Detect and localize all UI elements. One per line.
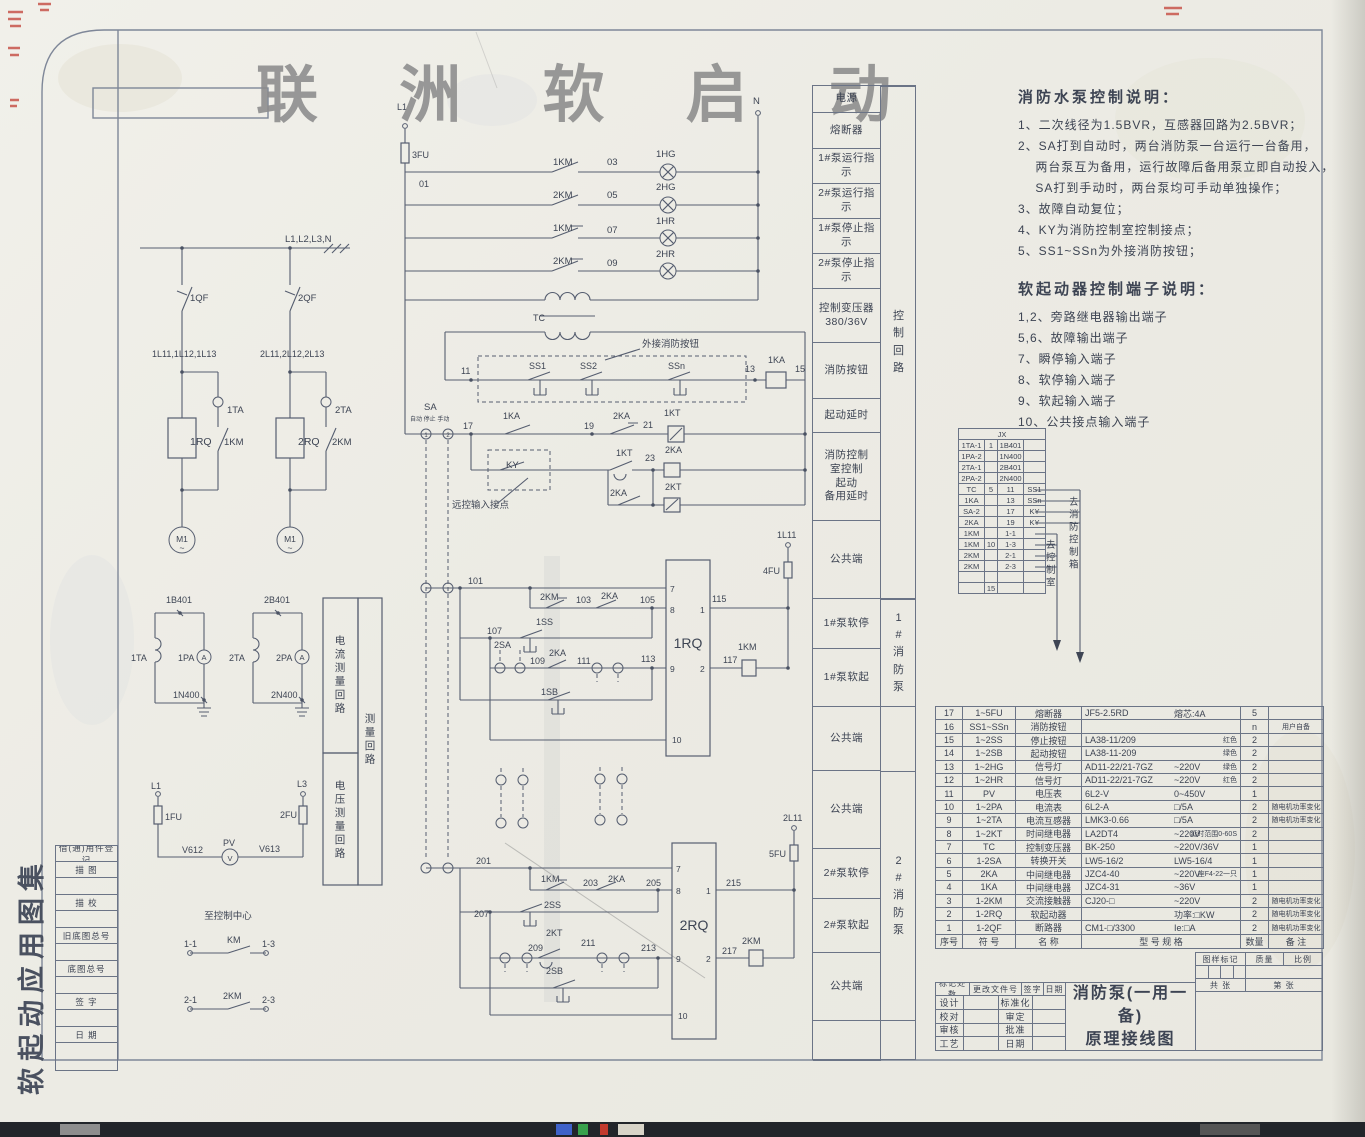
current-transformer-icon — [321, 397, 331, 407]
approval-value-cell — [963, 1023, 999, 1038]
approval-value-cell — [1032, 1036, 1066, 1051]
parts-model: BK-250 — [1085, 842, 1115, 852]
schematic-label: 1KM — [553, 157, 573, 168]
schematic-label: 2-1 — [184, 995, 197, 1005]
parts-cell: LA38-11/209红色 — [1081, 733, 1241, 747]
row-label-cell: 1#泵停止指示 — [813, 219, 881, 254]
schematic-label: 3FU — [412, 150, 429, 160]
approval-label-cell: 工艺 — [935, 1036, 964, 1051]
schematic-label: 107 — [487, 626, 502, 636]
approval-label-cell: 审核 — [935, 1023, 964, 1038]
parts-cell: 消防按钮 — [1015, 719, 1082, 733]
schematic-label: 1KT — [664, 408, 681, 418]
contact-number-circle — [595, 815, 605, 825]
notes-heading-1: 消防水泵控制说明： — [1018, 86, 1362, 107]
junction-dot — [458, 586, 462, 590]
parts-cell: 时间继电器 — [1015, 827, 1082, 841]
parts-cell: 2KA — [962, 867, 1016, 881]
parts-cell — [1268, 880, 1324, 894]
parts-extra: 红色 — [1223, 735, 1237, 745]
schematic-label: 109 — [530, 656, 545, 666]
notes-list-1: 1、二次线径为1.5BVR，互感器回路为2.5BVR；2、SA打到自动时，两台消… — [1018, 115, 1362, 262]
parts-cell: 2 — [1240, 773, 1269, 787]
schematic-label: SA — [424, 402, 437, 413]
scan-edge-shadow — [1331, 0, 1365, 1122]
parts-spec: Ie:□A — [1174, 923, 1195, 933]
note-item: 7、瞬停输入端子 — [1018, 349, 1362, 370]
approval-value-cell — [963, 995, 999, 1010]
parts-cell: 1-2QF — [962, 920, 1016, 934]
schematic-label: V612 — [182, 845, 203, 855]
schematic-label: 2TA — [335, 405, 352, 416]
schematic-label: 1FU — [165, 812, 182, 822]
junction-dot — [756, 203, 760, 207]
schematic-label: 15 — [795, 364, 805, 374]
row-label-cell: 1#泵软停 — [813, 599, 881, 649]
schematic-label: 1HG — [656, 149, 676, 160]
parts-extra: 绿色 — [1223, 762, 1237, 772]
note-item: 两台泵互为备用，运行故障后备用泵立即自动投入， — [1018, 157, 1362, 178]
stamp-mark-cell — [1195, 965, 1209, 979]
stamp-header-cell: 质量 — [1245, 952, 1284, 966]
parts-model: LW5-16/2 — [1085, 856, 1123, 866]
parts-cell: 6L2-A□/5A — [1081, 800, 1241, 814]
parts-cell: 用户自备 — [1268, 719, 1324, 733]
schematic-label: 19 — [584, 421, 594, 431]
notes-list-2: 1,2、旁路继电器输出端子5,6、故障输出端子7、瞬停输入端子8、软停输入端子9… — [1018, 307, 1362, 433]
parts-spec: 0~450V — [1174, 789, 1205, 799]
approval-value-cell — [1032, 1009, 1066, 1024]
schematic-label: 2KA — [549, 648, 566, 658]
parts-cell: 随电机功率变化 — [1268, 894, 1324, 908]
parts-cell: 交流接触器 — [1015, 894, 1082, 908]
parts-cell — [1268, 760, 1324, 774]
junction-dot — [803, 468, 807, 472]
current-transformer-icon — [213, 397, 223, 407]
register-cell — [55, 976, 118, 994]
schematic-label: 2KA — [665, 445, 682, 455]
note-item: 4、KY为消防控制室控制接点； — [1018, 220, 1362, 241]
scan-edge-artifact — [600, 1124, 608, 1135]
schematic-label: 2KT — [665, 482, 682, 492]
parts-cell — [1268, 853, 1324, 867]
parts-cell: JF5-2.5RD熔芯:4A — [1081, 706, 1241, 720]
parts-cell: JZC4-31~36V — [1081, 880, 1241, 894]
parts-cell: 2 — [1240, 760, 1269, 774]
schematic-label: 2KM — [540, 592, 559, 602]
junction-dot — [180, 488, 184, 492]
schematic-label: 远控输入接点 — [452, 499, 510, 511]
parts-cell — [1268, 867, 1324, 881]
parts-model: 6L2-A — [1085, 802, 1109, 812]
row-label-cell: 公共端 — [813, 521, 881, 599]
parts-cell: 1~2KT — [962, 827, 1016, 841]
parts-cell: PV — [962, 786, 1016, 800]
junction-dot — [756, 269, 760, 273]
schematic-label: 117 — [723, 655, 737, 665]
parts-cell: 功率:□KW — [1081, 907, 1241, 921]
parts-cell: TC — [962, 840, 1016, 854]
schematic-label: 1KT — [616, 448, 633, 458]
parts-cell: 12 — [935, 773, 963, 787]
parts-spec: ~220V/36V — [1174, 842, 1219, 852]
schematic-label: L1,L2,L3,N — [285, 234, 332, 245]
row-labels-column: 电源熔断器1#泵运行指示2#泵运行指示1#泵停止指示2#泵停止指示控制变压器 3… — [812, 85, 916, 1060]
parts-cell: LW5-16/2LW5-16/4 — [1081, 853, 1241, 867]
schematic-label: 1TA — [131, 653, 147, 663]
parts-header-cell: 符 号 — [962, 934, 1016, 949]
group-label-cell: 1 # 消 防 泵 — [881, 599, 916, 707]
register-cell: 描 校 — [55, 894, 118, 911]
register-cell: 旧底图总号 — [55, 927, 118, 944]
parts-model: AD11-22/21-7GZ — [1085, 762, 1153, 772]
schematic-label: 2-3 — [262, 995, 275, 1005]
contact-number-circle — [617, 815, 627, 825]
parts-cell: 1 — [935, 920, 963, 934]
parts-cell: BK-250~220V/36V — [1081, 840, 1241, 854]
register-cell: 底图总号 — [55, 960, 118, 977]
schematic-label: 1KM — [738, 642, 757, 652]
parts-cell: 2 — [1240, 907, 1269, 921]
register-cell: 描 图 — [55, 861, 118, 878]
schematic-label: 2KM — [553, 256, 573, 267]
terminal-icon — [301, 792, 306, 797]
scan-edge-artifact — [556, 1124, 572, 1135]
schematic-label: 2 — [700, 664, 705, 674]
schematic-label: 207 — [474, 909, 489, 919]
schematic-label: 1KM — [541, 874, 560, 884]
parts-cell: 15 — [935, 733, 963, 747]
row-label-cell: 公共端 — [813, 771, 881, 849]
parts-cell: 电压表 — [1015, 786, 1082, 800]
parts-cell: 1 — [1240, 853, 1269, 867]
parts-cell: 3 — [935, 894, 963, 908]
junction-dot — [528, 586, 532, 590]
schematic-label: 21 — [643, 420, 653, 430]
schematic-label: SS1 — [529, 361, 546, 371]
schematic-label: 1KM — [224, 437, 244, 448]
parts-cell: 停止按钮 — [1015, 733, 1082, 747]
schematic-label: 电压测量回路 — [335, 779, 346, 860]
junction-dot — [786, 666, 790, 670]
group-label-cell: 2 # 消 防 泵 — [881, 771, 916, 1021]
schematic-label: 07 — [607, 225, 618, 236]
schematic-symbols — [156, 111, 807, 1012]
parts-cell: 中间继电器 — [1015, 867, 1082, 881]
schematic-label: KY — [506, 460, 519, 471]
parts-cell: 14 — [935, 746, 963, 760]
stamp-mark-cell — [1208, 965, 1222, 979]
schematic-label: 1HR — [656, 216, 675, 227]
schematic-label: A — [299, 653, 304, 662]
parts-model: LA38-11/209 — [1085, 735, 1136, 745]
schematic-label: V — [227, 854, 232, 863]
register-cell — [55, 877, 118, 895]
notes-block: 消防水泵控制说明： 1、二次线径为1.5BVR，互感器回路为2.5BVR；2、S… — [1018, 86, 1362, 433]
note-item: 5,6、故障输出端子 — [1018, 328, 1362, 349]
approval-label-cell: 日期 — [998, 1036, 1033, 1051]
schematic-label: 2KA — [608, 874, 625, 884]
approval-value-cell — [963, 1009, 999, 1024]
terminal-icon — [156, 792, 161, 797]
row-label-cell: 控制变压器 380/36V — [813, 289, 881, 343]
parts-model: LA2DT4 — [1085, 829, 1118, 839]
schematic-label: 10 — [678, 1011, 688, 1021]
parts-cell: 5 — [1240, 706, 1269, 720]
parts-cell: 熔断器 — [1015, 706, 1082, 720]
revision-header-cell: 签字 — [1021, 982, 1044, 996]
parts-cell: 软起动器 — [1015, 907, 1082, 921]
schematic-label: 2PA — [276, 653, 292, 663]
parts-cell: 13 — [935, 760, 963, 774]
scan-bottom-strip — [0, 1122, 1365, 1137]
schematic-label: 1KA — [503, 411, 520, 421]
approval-label-cell: 批准 — [998, 1023, 1033, 1038]
parts-model: LMK3-0.66 — [1085, 815, 1129, 825]
schematic-label: 2QF — [298, 293, 317, 304]
junction-dot — [590, 432, 594, 436]
parts-cell: 17 — [935, 706, 963, 720]
junction-dot — [650, 606, 654, 610]
approval-label-cell: 标准化 — [998, 995, 1033, 1010]
parts-extra: 绿色 — [1223, 748, 1237, 758]
row-label-cell: 2#泵软停 — [813, 849, 881, 899]
side-vertical-title: 软起动应用图集 — [10, 845, 48, 1107]
parts-cell: 1~2HG — [962, 760, 1016, 774]
schematic-label: 1 — [706, 886, 711, 896]
parts-cell: 电流互感器 — [1015, 813, 1082, 827]
drawing-title-line1: 消防泵(一用一备) — [1066, 982, 1195, 1028]
parts-cell: SS1~SSn — [962, 719, 1016, 733]
junction-dot — [792, 888, 796, 892]
schematic-label: ~ — [288, 543, 293, 553]
schematic-label: 2RQ — [298, 436, 320, 448]
parts-spec: 熔芯:4A — [1174, 707, 1206, 720]
parts-cell: 2 — [1240, 733, 1269, 747]
parts-model: AD11-22/21-7GZ — [1085, 775, 1153, 785]
parts-extra: 延时范围0-60S — [1190, 829, 1237, 839]
parts-model: CM1-□/3300 — [1085, 923, 1135, 933]
parts-cell: 随电机功率变化 — [1268, 813, 1324, 827]
schematic-label: 115 — [712, 594, 726, 604]
schematic-label: 电流测量回路 — [335, 634, 346, 715]
stamp-mark-cell — [1220, 965, 1234, 979]
note-item: 2、SA打到自动时，两台消防泵一台运行一台备用， — [1018, 136, 1362, 157]
jx-cell — [958, 582, 985, 594]
junction-dot — [656, 956, 660, 960]
parts-cell: 电流表 — [1015, 800, 1082, 814]
note-item: 5、SS1~SSn为外接消防按钮； — [1018, 241, 1362, 262]
junction-dot — [803, 432, 807, 436]
schematic-label: 1 — [700, 605, 705, 615]
parts-cell: 11 — [935, 786, 963, 800]
note-item: 8、软停输入端子 — [1018, 370, 1362, 391]
parts-spec: □/5A — [1174, 802, 1193, 812]
register-cell: 借(通)用件登记 — [55, 845, 118, 862]
parts-model: CJ20-□ — [1085, 896, 1114, 906]
parts-cell: 1~2SS — [962, 733, 1016, 747]
row-label-cell: 1#泵运行指示 — [813, 149, 881, 184]
schematic-label: 2B401 — [264, 595, 290, 605]
row-label-cell: 2#泵运行指示 — [813, 184, 881, 219]
parts-cell: 1-2SA — [962, 853, 1016, 867]
schematic-label: 211 — [581, 938, 595, 948]
parts-cell: 2 — [1240, 827, 1269, 841]
register-cell — [55, 1009, 118, 1027]
parts-cell: 1-2KM — [962, 894, 1016, 908]
approval-label-cell: 审定 — [998, 1009, 1033, 1024]
schematic-label: 2KM — [223, 991, 242, 1001]
parts-cell: 随电机功率变化 — [1268, 920, 1324, 934]
terminal-icon — [786, 543, 791, 548]
parts-cell: 6L2-V0~450V — [1081, 786, 1241, 800]
schematic-label: 1RQ — [674, 635, 703, 651]
parts-cell: 信号灯 — [1015, 773, 1082, 787]
parts-cell: 1~2PA — [962, 800, 1016, 814]
approval-value-cell — [1032, 995, 1066, 1010]
jx-cell — [1023, 582, 1046, 594]
schematic-label: 2SA — [494, 640, 511, 650]
junction-dot — [488, 636, 492, 640]
jx-arrows — [1053, 640, 1084, 663]
schematic-label: 2KM — [553, 190, 573, 201]
junction-dot — [469, 432, 473, 436]
parts-cell: CJ20-□~220V — [1081, 894, 1241, 908]
parts-cell: LA2DT4~220V延时范围0-60S — [1081, 827, 1241, 841]
schematic-label: 测量回路 — [365, 712, 376, 766]
schematic-label: 203 — [583, 878, 598, 888]
schematic-label: ~ — [180, 543, 185, 553]
schematic-label: A — [201, 653, 206, 662]
junction-dot — [650, 666, 654, 670]
schematic-label: TC — [533, 313, 545, 323]
parts-cell: 转换开关 — [1015, 853, 1082, 867]
parts-cell: 控制变压器 — [1015, 840, 1082, 854]
schematic-label: 1TA — [227, 405, 244, 416]
parts-cell: 2 — [1240, 813, 1269, 827]
junction-dot — [180, 246, 184, 250]
junction-dot — [288, 370, 292, 374]
scan-edge-artifact — [60, 1124, 100, 1135]
schematic-label: 1-3 — [262, 939, 275, 949]
parts-model: JZC4-40 — [1085, 869, 1120, 879]
schematic-label: 去消防控制箱 — [1069, 496, 1079, 571]
scan-edge-artifact — [618, 1124, 644, 1135]
parts-model: JF5-2.5RD — [1085, 708, 1129, 718]
contact-number-circle — [518, 818, 528, 828]
parts-cell: 1~2SB — [962, 746, 1016, 760]
schematic-label: 8 — [670, 605, 675, 615]
schematic-label: 113 — [641, 654, 655, 664]
contact-number-circle — [617, 774, 627, 784]
parts-cell: 16 — [935, 719, 963, 733]
parts-spec: ~220V — [1174, 869, 1200, 879]
schematic-label: 2L11,2L12,2L13 — [260, 349, 324, 359]
schematic-label: KM — [227, 935, 241, 945]
schematic-label: 自动 停止 手动 — [410, 415, 449, 423]
schematic-label: 去控制室 — [1046, 539, 1056, 589]
parts-cell: 2 — [1240, 894, 1269, 908]
parts-cell: 4 — [935, 880, 963, 894]
contact-number-circle — [496, 818, 506, 828]
schematic-label: 1L11 — [777, 530, 796, 540]
parts-cell: 断路器 — [1015, 920, 1082, 934]
parts-cell — [1268, 706, 1324, 720]
parts-spec: 功率:□KW — [1174, 908, 1214, 921]
register-cell — [55, 1042, 118, 1071]
schematic-label: 5FU — [769, 849, 786, 859]
schematic-label: 1-1 — [184, 939, 197, 949]
junction-dot — [756, 170, 760, 174]
parts-cell — [1268, 827, 1324, 841]
note-item: 10、公共接点输入端子 — [1018, 412, 1362, 433]
parts-cell: 1 — [1240, 867, 1269, 881]
title-block: 标记处数更改文件号签字日期设计标准化校对审定审核批准工艺日期消防泵(一用一备)原… — [935, 952, 1323, 1050]
stamp-mark-cell — [1233, 965, 1247, 979]
parts-cell: 1 — [1240, 840, 1269, 854]
stamp-mark-cell — [1245, 965, 1323, 979]
parts-model: LA38-11-209 — [1085, 748, 1136, 758]
row-label-cell: 1#泵软起 — [813, 649, 881, 707]
schematic-label: 外接消防按钮 — [642, 338, 700, 350]
parts-cell: 6 — [935, 853, 963, 867]
sheets-no-cell: 第 张 — [1245, 978, 1323, 992]
stamp-header-cell: 图样标记 — [1195, 952, 1246, 966]
parts-cell: 1-2RQ — [962, 907, 1016, 921]
schematic-label: 1PA — [178, 653, 194, 663]
schematic-label: 09 — [607, 258, 618, 269]
row-label-cell: 2#泵软起 — [813, 899, 881, 953]
stamp-header-cell: 比例 — [1283, 952, 1323, 966]
parts-cell: 1~5FU — [962, 706, 1016, 720]
drawing-title-cell: 消防泵(一用一备)原理接线图 — [1065, 982, 1196, 1051]
contact-number-circle — [518, 775, 528, 785]
parts-header-cell: 型 号 规 格 — [1081, 934, 1241, 949]
schematic-label: 11 — [461, 366, 470, 376]
register-cell — [55, 910, 118, 928]
parts-cell: 1~2HR — [962, 773, 1016, 787]
schematic-label: 2FU — [280, 810, 297, 820]
row-label-cell: 熔断器 — [813, 113, 881, 149]
parts-header-cell: 备 注 — [1268, 934, 1324, 949]
junction-dot — [288, 246, 292, 250]
schematic-label: 9 — [670, 664, 675, 674]
schematic-label: 8 — [676, 886, 681, 896]
schematic-label: 103 — [576, 595, 591, 605]
schematic-label: 1SB — [541, 687, 558, 697]
scanned-drawing-page: L1,L2,L3,N1QF2QF1L11,1L12,1L132L11,2L12,… — [0, 0, 1365, 1137]
parts-cell: 1 — [1240, 880, 1269, 894]
note-item: SA打到手动时，两台泵均可手动单独操作； — [1018, 178, 1362, 199]
jx-cell: 15 — [984, 582, 998, 594]
parts-cell: 8 — [935, 827, 963, 841]
parts-cell — [1268, 773, 1324, 787]
schematic-label: 1QF — [190, 293, 209, 304]
parts-extra: 红色 — [1223, 775, 1237, 785]
parts-spec: ~220V — [1174, 762, 1200, 772]
scan-edge-artifact — [1200, 1124, 1260, 1135]
schematic-label: 215 — [726, 878, 741, 888]
approval-value-cell — [963, 1036, 999, 1051]
register-cell — [55, 943, 118, 961]
parts-cell: 7 — [935, 840, 963, 854]
row-label-cell: 电源 — [813, 86, 881, 113]
parts-cell — [1081, 719, 1241, 733]
schematic-label: 101 — [468, 576, 483, 586]
junction-dot — [756, 236, 760, 240]
parts-cell: JZC4-40~220V座F4-22一只 — [1081, 867, 1241, 881]
parts-cell: 信号灯 — [1015, 760, 1082, 774]
